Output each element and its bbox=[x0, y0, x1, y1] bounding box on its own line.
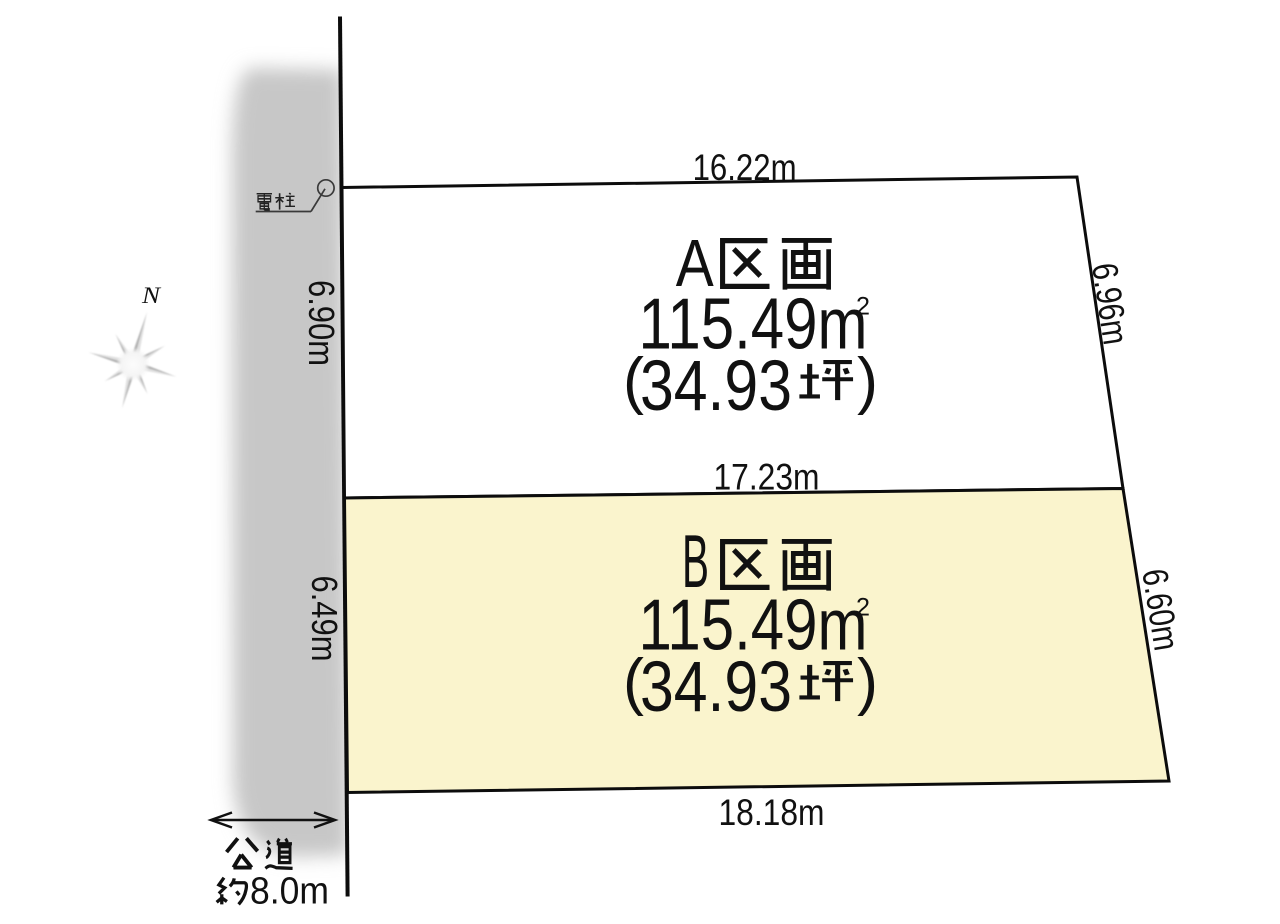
svg-text:34.93: 34.93 bbox=[640, 347, 792, 426]
svg-text:6.49m: 6.49m bbox=[304, 576, 345, 662]
svg-text:34.93: 34.93 bbox=[640, 648, 792, 727]
svg-text:17.23m: 17.23m bbox=[714, 457, 820, 498]
svg-text:16.22m: 16.22m bbox=[693, 147, 797, 188]
svg-text:): ) bbox=[857, 647, 878, 717]
svg-text:18.18m: 18.18m bbox=[719, 792, 825, 833]
svg-text:): ) bbox=[857, 346, 878, 416]
svg-text:8.0m: 8.0m bbox=[250, 871, 329, 913]
svg-text:2: 2 bbox=[856, 293, 870, 321]
svg-text:6.90m: 6.90m bbox=[301, 280, 342, 366]
svg-text:2: 2 bbox=[856, 594, 870, 622]
svg-text:N: N bbox=[141, 283, 162, 308]
